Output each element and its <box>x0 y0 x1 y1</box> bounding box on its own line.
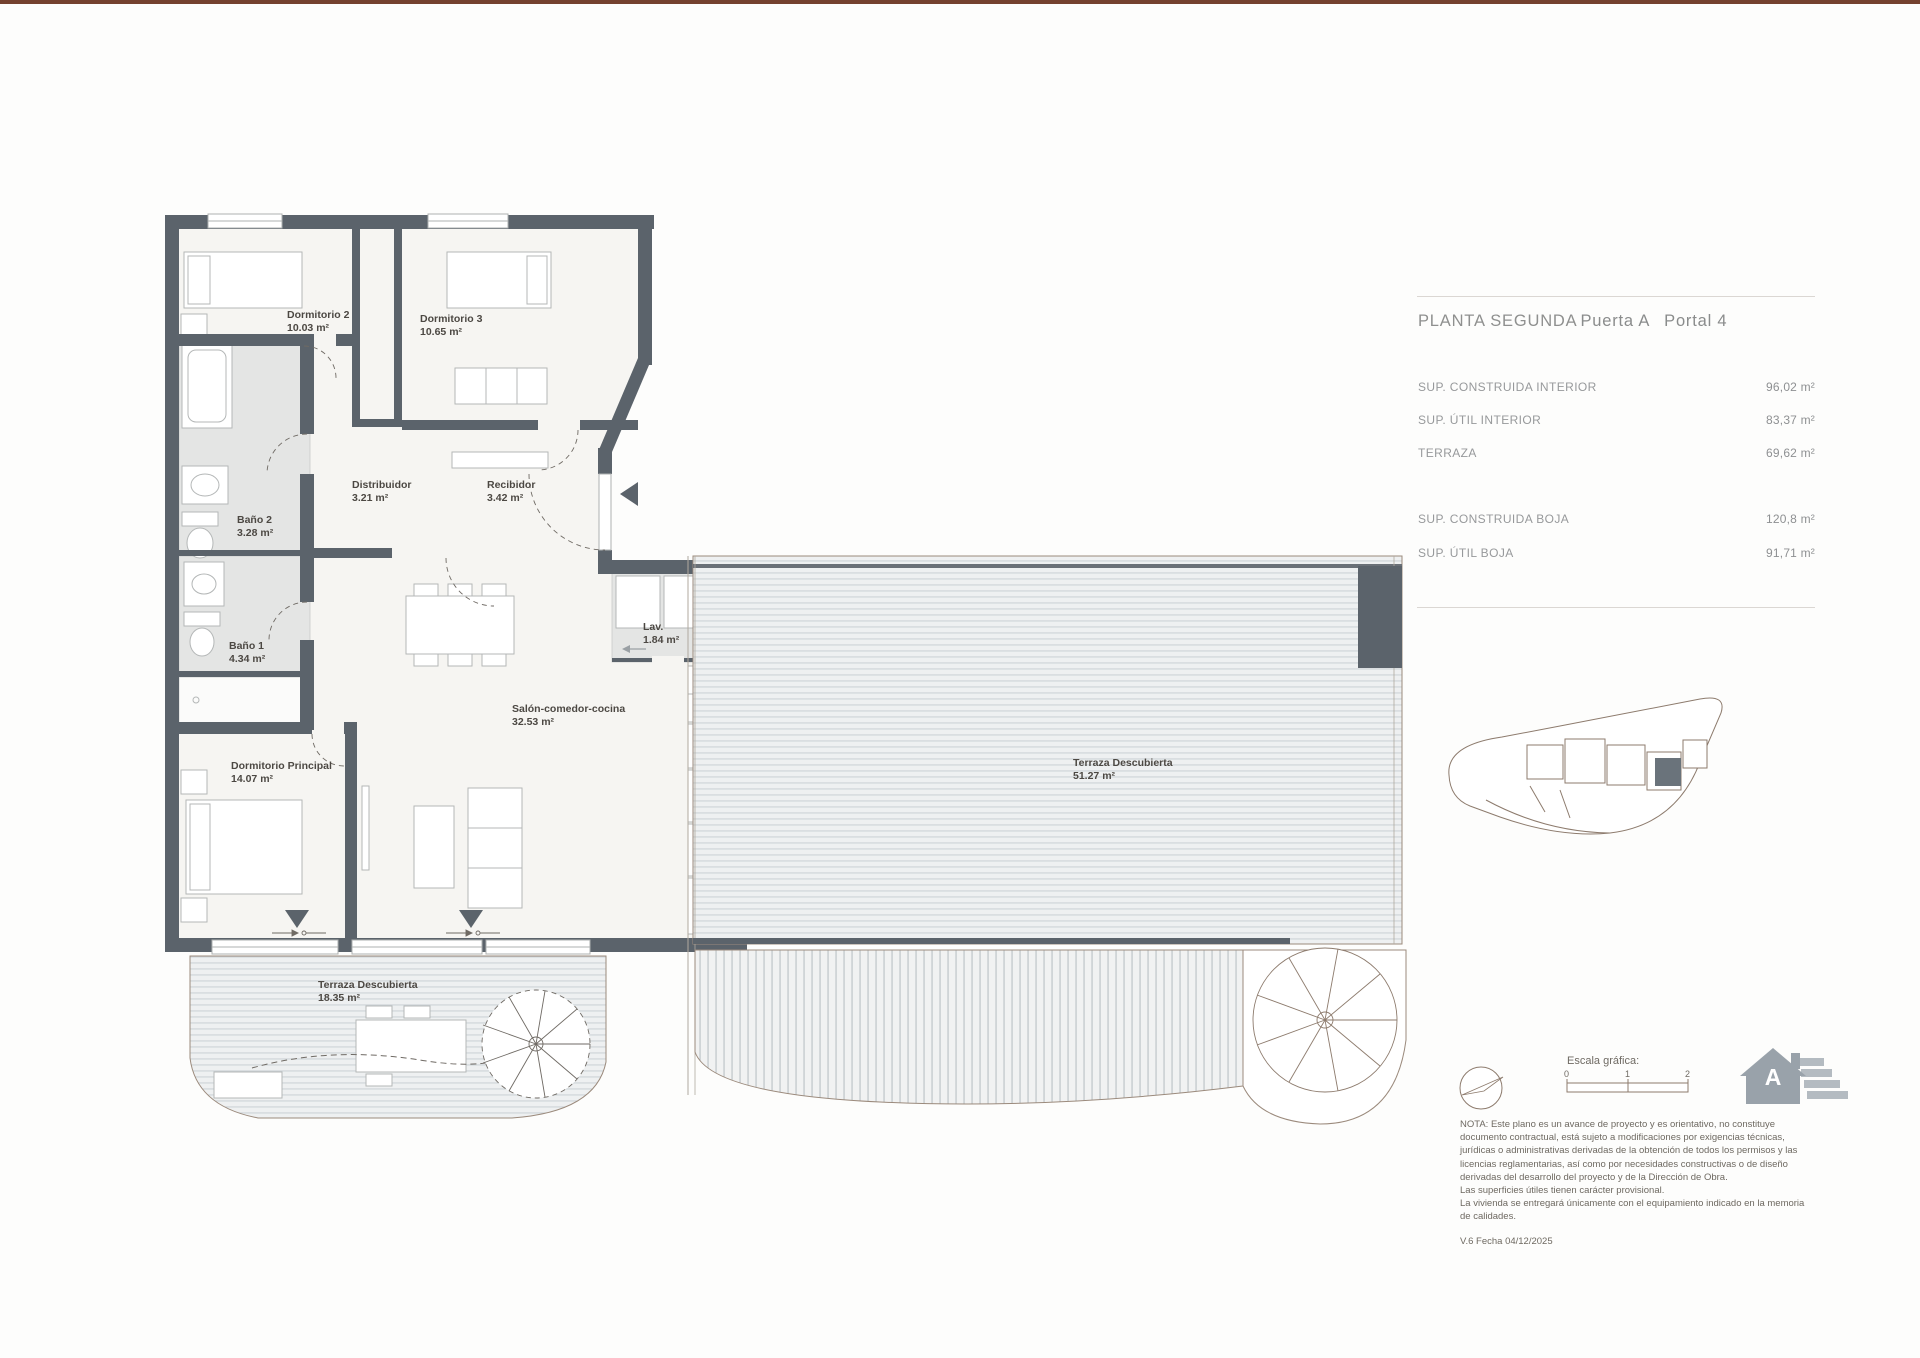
area-row-value: 96,02 m² <box>1766 381 1815 394</box>
area-row-value: 69,62 m² <box>1766 447 1815 460</box>
room-label-distribuidor: Distribuidor 3.21 m² <box>352 479 412 505</box>
room-area: 4.34 m² <box>229 653 265 666</box>
site-key-plan <box>1449 698 1722 834</box>
area-row-label: TERRAZA <box>1418 447 1477 460</box>
door-title: Puerta A <box>1580 312 1650 330</box>
energy-rating-letter: A <box>1756 1066 1790 1089</box>
room-label-bano1: Baño 1 4.34 m² <box>229 640 265 666</box>
room-area: 3.21 m² <box>352 492 412 505</box>
area-row-label: SUP. ÚTIL BOJA <box>1418 547 1514 560</box>
room-name: Baño 1 <box>229 640 265 653</box>
plan-sheet: Dormitorio 2 10.03 m² Dormitorio 3 10.65… <box>0 0 1920 1358</box>
area-row: SUP. ÚTIL INTERIOR 83,37 m² <box>1418 414 1815 427</box>
room-area: 51.27 m² <box>1073 770 1173 783</box>
terrace-spiral-stair <box>1253 948 1397 1092</box>
pergola-strip <box>695 950 1243 1104</box>
scale-bar-graphic <box>1567 1079 1688 1092</box>
terrace-wall-block <box>1358 566 1402 668</box>
scale-tick: 1 <box>1625 1070 1630 1079</box>
area-row: TERRAZA 69,62 m² <box>1418 447 1815 460</box>
disclaimer-note: NOTA: Este plano es un avance de proyect… <box>1460 1118 1852 1224</box>
portal-title: Portal 4 <box>1664 312 1727 330</box>
room-label-dormitorio2: Dormitorio 2 10.03 m² <box>287 309 349 335</box>
room-area: 14.07 m² <box>231 773 332 786</box>
room-area: 10.65 m² <box>420 326 482 339</box>
area-row-label: SUP. ÚTIL INTERIOR <box>1418 414 1541 427</box>
room-label-bano2: Baño 2 3.28 m² <box>237 514 273 540</box>
area-row-label: SUP. CONSTRUIDA BOJA <box>1418 513 1569 526</box>
room-label-lav: Lav. 1.84 m² <box>643 621 679 647</box>
room-name: Dormitorio 3 <box>420 313 482 326</box>
page-title: PLANTA SEGUNDAPuerta APortal 4 <box>1418 312 1727 332</box>
scale-tick: 0 <box>1564 1070 1569 1079</box>
version-date: V.6 Fecha 04/12/2025 <box>1460 1236 1553 1247</box>
area-row-value: 120,8 m² <box>1766 513 1815 526</box>
area-row-value: 83,37 m² <box>1766 414 1815 427</box>
title-divider-top <box>1417 296 1815 297</box>
area-row: SUP. CONSTRUIDA INTERIOR 96,02 m² <box>1418 381 1815 394</box>
highlighted-unit <box>1655 758 1681 786</box>
area-row-value: 91,71 m² <box>1766 547 1815 560</box>
entrance-marker <box>620 482 638 506</box>
room-area: 3.28 m² <box>237 527 273 540</box>
north-arrow-icon <box>1460 1067 1503 1109</box>
room-name: Recibidor <box>487 479 535 492</box>
room-label-terraza-51: Terraza Descubierta 51.27 m² <box>1073 757 1173 783</box>
room-name: Dormitorio Principal <box>231 760 332 773</box>
room-name: Terraza Descubierta <box>318 979 418 992</box>
laundry-door-gap <box>652 656 684 664</box>
room-area: 10.03 m² <box>287 322 349 335</box>
room-label-dormitorio3: Dormitorio 3 10.65 m² <box>420 313 482 339</box>
room-name: Baño 2 <box>237 514 273 527</box>
room-name: Lav. <box>643 621 679 634</box>
room-label-dormitorio-principal: Dormitorio Principal 14.07 m² <box>231 760 332 786</box>
room-label-salon: Salón-comedor-cocina 32.53 m² <box>512 703 625 729</box>
apartment-floor-plan <box>165 214 747 1118</box>
room-name: Dormitorio 2 <box>287 309 349 322</box>
room-label-recibidor: Recibidor 3.42 m² <box>487 479 535 505</box>
room-name: Distribuidor <box>352 479 412 492</box>
floor-title: PLANTA SEGUNDA <box>1418 312 1577 330</box>
scale-bar-label: Escala gráfica: <box>1567 1055 1639 1067</box>
title-divider-bottom <box>1417 607 1815 608</box>
room-name: Salón-comedor-cocina <box>512 703 625 716</box>
area-row-label: SUP. CONSTRUIDA INTERIOR <box>1418 381 1597 394</box>
room-label-terraza-18: Terraza Descubierta 18.35 m² <box>318 979 418 1005</box>
area-row: SUP. CONSTRUIDA BOJA 120,8 m² <box>1418 513 1815 526</box>
spiral-stair <box>482 990 590 1098</box>
room-area: 1.84 m² <box>643 634 679 647</box>
entry-door-leaf <box>599 474 611 550</box>
scale-tick: 2 <box>1685 1070 1690 1079</box>
roof-terrace-plan <box>688 556 1406 1124</box>
room-name: Terraza Descubierta <box>1073 757 1173 770</box>
room-area: 32.53 m² <box>512 716 625 729</box>
room-area: 3.42 m² <box>487 492 535 505</box>
room-area: 18.35 m² <box>318 992 418 1005</box>
area-row: SUP. ÚTIL BOJA 91,71 m² <box>1418 547 1815 560</box>
